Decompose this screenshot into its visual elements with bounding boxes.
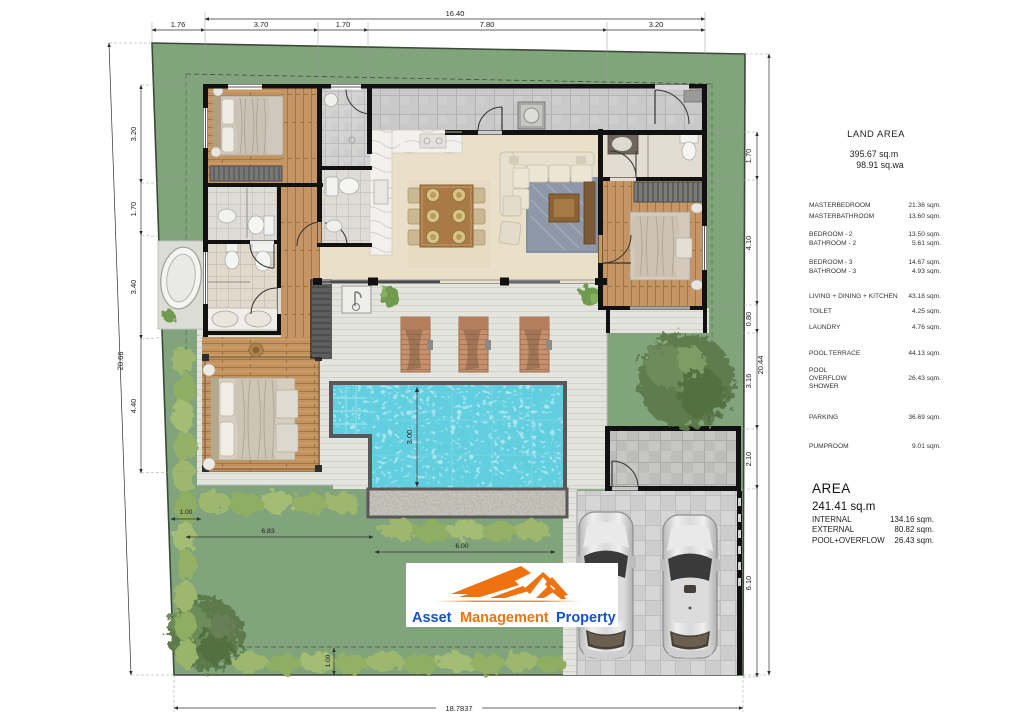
svg-text:1.70: 1.70 bbox=[744, 149, 753, 164]
svg-text:POOL TERRACE: POOL TERRACE bbox=[809, 350, 861, 357]
svg-text:EXTERNAL: EXTERNAL bbox=[812, 525, 855, 534]
svg-text:20.44: 20.44 bbox=[756, 356, 765, 375]
svg-text:MASTERBEDROOM: MASTERBEDROOM bbox=[809, 202, 871, 209]
svg-text:13.60 sqm.: 13.60 sqm. bbox=[908, 213, 941, 220]
svg-text:26.43 sqm.: 26.43 sqm. bbox=[894, 536, 934, 545]
svg-text:Asset: Asset bbox=[412, 610, 452, 626]
svg-text:14.67 sqm.: 14.67 sqm. bbox=[908, 259, 941, 266]
svg-text:241.41 sq.m: 241.41 sq.m bbox=[812, 501, 875, 513]
svg-text:LAND AREA: LAND AREA bbox=[847, 129, 905, 140]
svg-text:TOILET: TOILET bbox=[809, 308, 832, 315]
svg-text:3.00: 3.00 bbox=[405, 430, 414, 445]
svg-text:SHOWER: SHOWER bbox=[809, 383, 839, 390]
svg-text:1.70: 1.70 bbox=[129, 202, 138, 217]
svg-text:4.40: 4.40 bbox=[129, 399, 138, 414]
svg-text:9.01 sqm.: 9.01 sqm. bbox=[912, 443, 941, 450]
svg-text:80.82 sqm.: 80.82 sqm. bbox=[894, 525, 934, 534]
svg-text:PUMPROOM: PUMPROOM bbox=[809, 443, 849, 450]
svg-text:Management: Management bbox=[460, 610, 549, 626]
svg-text:BEDROOM - 2: BEDROOM - 2 bbox=[809, 231, 853, 238]
svg-text:26.43 sqm.: 26.43 sqm. bbox=[908, 375, 941, 382]
svg-text:OVERFLOW: OVERFLOW bbox=[809, 375, 848, 382]
svg-text:395.67 sq.m: 395.67 sq.m bbox=[850, 149, 898, 159]
svg-text:BATHROOM - 3: BATHROOM - 3 bbox=[809, 268, 856, 275]
svg-text:BEDROOM - 3: BEDROOM - 3 bbox=[809, 259, 853, 266]
svg-text:2.10: 2.10 bbox=[744, 452, 753, 467]
svg-text:18.7837: 18.7837 bbox=[445, 704, 472, 713]
svg-text:POOL+OVERFLOW: POOL+OVERFLOW bbox=[812, 536, 885, 545]
svg-text:6.83: 6.83 bbox=[261, 528, 274, 535]
svg-text:Property: Property bbox=[556, 610, 616, 626]
svg-text:98.91 sq.wa: 98.91 sq.wa bbox=[856, 160, 904, 170]
svg-text:3.20: 3.20 bbox=[649, 20, 664, 29]
svg-text:5.61 sqm.: 5.61 sqm. bbox=[912, 240, 941, 247]
svg-text:134.16 sqm.: 134.16 sqm. bbox=[890, 515, 934, 524]
svg-text:6.10: 6.10 bbox=[744, 576, 753, 591]
svg-text:1.00: 1.00 bbox=[325, 654, 332, 667]
svg-text:7.80: 7.80 bbox=[480, 20, 495, 29]
svg-text:AREA: AREA bbox=[812, 481, 851, 496]
svg-text:INTERNAL: INTERNAL bbox=[812, 515, 852, 524]
svg-text:43.18 sqm.: 43.18 sqm. bbox=[908, 293, 941, 300]
svg-text:44.13 sqm.: 44.13 sqm. bbox=[908, 350, 941, 357]
svg-text:1.00: 1.00 bbox=[180, 509, 193, 516]
svg-text:BATHROOM - 2: BATHROOM - 2 bbox=[809, 240, 856, 247]
svg-text:13.50 sqm.: 13.50 sqm. bbox=[908, 231, 941, 238]
svg-text:4.93 sqm.: 4.93 sqm. bbox=[912, 268, 941, 275]
svg-text:20.66: 20.66 bbox=[116, 351, 126, 370]
svg-text:21.36 sqm.: 21.36 sqm. bbox=[908, 202, 941, 209]
svg-text:4.25 sqm.: 4.25 sqm. bbox=[912, 308, 941, 315]
svg-text:PARKING: PARKING bbox=[809, 414, 838, 421]
svg-text:3.20: 3.20 bbox=[129, 127, 138, 142]
svg-text:3.16: 3.16 bbox=[744, 374, 753, 389]
svg-text:LAUNDRY: LAUNDRY bbox=[809, 324, 841, 331]
svg-text:0.80: 0.80 bbox=[744, 312, 753, 327]
svg-text:4.10: 4.10 bbox=[744, 236, 753, 251]
svg-text:LIVING + DINING + KITCHEN: LIVING + DINING + KITCHEN bbox=[809, 293, 898, 300]
svg-text:POOL: POOL bbox=[809, 367, 828, 374]
svg-text:3.70: 3.70 bbox=[254, 20, 269, 29]
svg-text:16.40: 16.40 bbox=[446, 9, 465, 18]
svg-text:1.76: 1.76 bbox=[171, 20, 186, 29]
svg-text:3.40: 3.40 bbox=[129, 280, 138, 295]
svg-text:6.00: 6.00 bbox=[455, 543, 468, 550]
svg-text:4.76 sqm.: 4.76 sqm. bbox=[912, 324, 941, 331]
svg-text:36.69 sqm.: 36.69 sqm. bbox=[908, 414, 941, 421]
svg-text:MASTERBATHROOM: MASTERBATHROOM bbox=[809, 213, 874, 220]
svg-text:1.70: 1.70 bbox=[336, 20, 351, 29]
